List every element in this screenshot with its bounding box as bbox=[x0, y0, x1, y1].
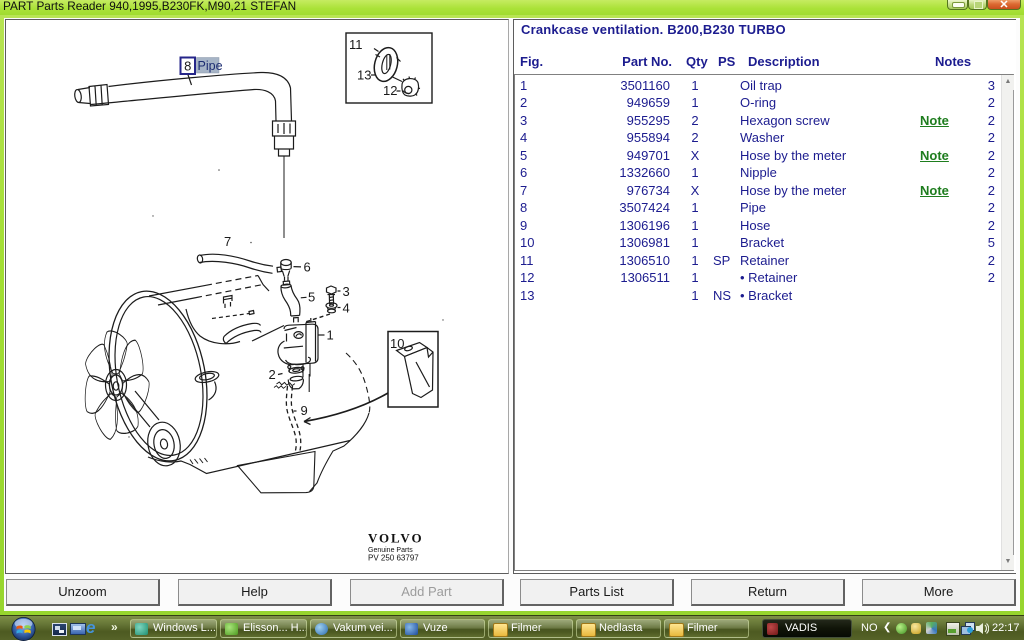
svg-text:4: 4 bbox=[343, 301, 350, 316]
svg-text:12: 12 bbox=[383, 83, 397, 98]
svg-text:PV 250 63797: PV 250 63797 bbox=[368, 554, 419, 563]
svg-text:13: 13 bbox=[357, 68, 371, 83]
svg-text:2: 2 bbox=[269, 367, 276, 382]
svg-text:11: 11 bbox=[349, 37, 363, 52]
svg-text:5: 5 bbox=[308, 290, 315, 305]
svg-text:3: 3 bbox=[343, 284, 350, 299]
svg-text:1: 1 bbox=[327, 328, 334, 343]
svg-text:6: 6 bbox=[304, 260, 311, 275]
svg-text:8: 8 bbox=[184, 59, 191, 74]
svg-text:VOLVO: VOLVO bbox=[368, 531, 423, 546]
svg-text:9: 9 bbox=[301, 403, 308, 418]
svg-text:Pipe: Pipe bbox=[198, 59, 223, 73]
svg-text:7: 7 bbox=[224, 234, 231, 249]
